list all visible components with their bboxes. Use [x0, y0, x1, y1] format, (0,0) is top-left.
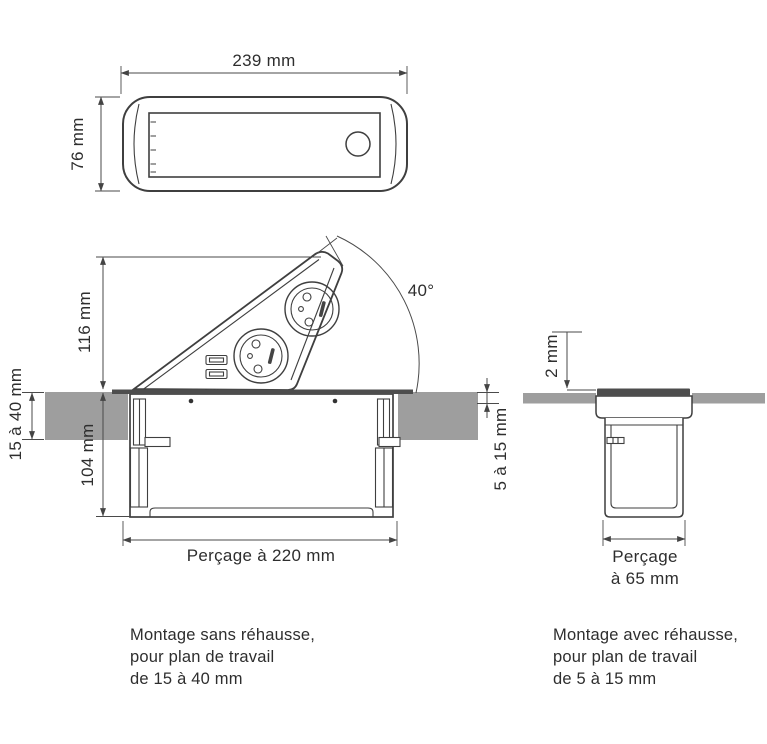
dim-drill-220: Perçage à 220 mm [123, 521, 397, 565]
caption-right-line2: pour plan de travail [553, 648, 697, 666]
dim-width-label: 239 mm [232, 51, 295, 70]
top-view: 239 mm 76 mm [68, 51, 407, 191]
caption-right-line3: de 5 à 15 mm [553, 670, 656, 688]
dim-height-76: 76 mm [68, 97, 120, 191]
thin-worktop-right [692, 393, 765, 404]
dim-width-239: 239 mm [121, 51, 407, 94]
dim-65-label-line1: Perçage [612, 547, 677, 566]
worktop-right-panel [398, 392, 478, 440]
caption-left-line2: pour plan de travail [130, 648, 274, 666]
caption-left: Montage sans réhausse, pour plan de trav… [130, 626, 315, 688]
riser-flange-cap [597, 389, 690, 397]
right-section-view: 2 mm 5 à 15 mm Perçage à 65 mm [477, 332, 765, 588]
flange-screw-right [333, 399, 338, 404]
captions: Montage sans réhausse, pour plan de trav… [130, 626, 738, 688]
riser-collar [596, 396, 692, 418]
dim-worktop-5-15: 5 à 15 mm [477, 378, 510, 491]
angle-label: 40° [408, 281, 435, 300]
dim-height-label: 76 mm [68, 117, 87, 170]
caption-right: Montage avec réhausse, pour plan de trav… [553, 626, 738, 688]
dim-drill-65: Perçage à 65 mm [603, 520, 685, 588]
dim-104-label: 104 mm [78, 423, 97, 486]
recess-box [130, 394, 393, 517]
dim-riser-2: 2 mm [542, 332, 596, 390]
dim-15-40-label: 15 à 40 mm [6, 368, 25, 461]
left-section-view: 5V-2A max 40° 116 mm 15 à 40 mm [6, 236, 478, 565]
popup-unit: 5V-2A max [134, 252, 342, 395]
dim-5-15-label: 5 à 15 mm [491, 407, 510, 490]
usb-ports: 5V-2A max [205, 356, 232, 396]
dim-worktop-15-40: 15 à 40 mm [6, 368, 44, 461]
dim-116-label: 116 mm [75, 291, 94, 353]
mounting-flange [112, 390, 413, 395]
flange-screw-left [189, 399, 194, 404]
caption-right-line1: Montage avec réhausse, [553, 626, 738, 644]
dim-220-label: Perçage à 220 mm [187, 546, 335, 565]
caption-left-line1: Montage sans réhausse, [130, 626, 315, 644]
angle-arc [337, 236, 419, 393]
dim-65-label-line2: à 65 mm [611, 569, 679, 588]
right-clamp-tab [607, 438, 624, 444]
caption-left-line3: de 15 à 40 mm [130, 670, 243, 688]
technical-drawing: 239 mm 76 mm [0, 0, 767, 744]
clamp-right [376, 399, 401, 507]
dim-2-label: 2 mm [542, 334, 561, 378]
right-recess-box [605, 418, 683, 517]
thin-worktop-left [523, 393, 596, 404]
technical-drawing-page: 239 mm 76 mm [0, 0, 767, 744]
